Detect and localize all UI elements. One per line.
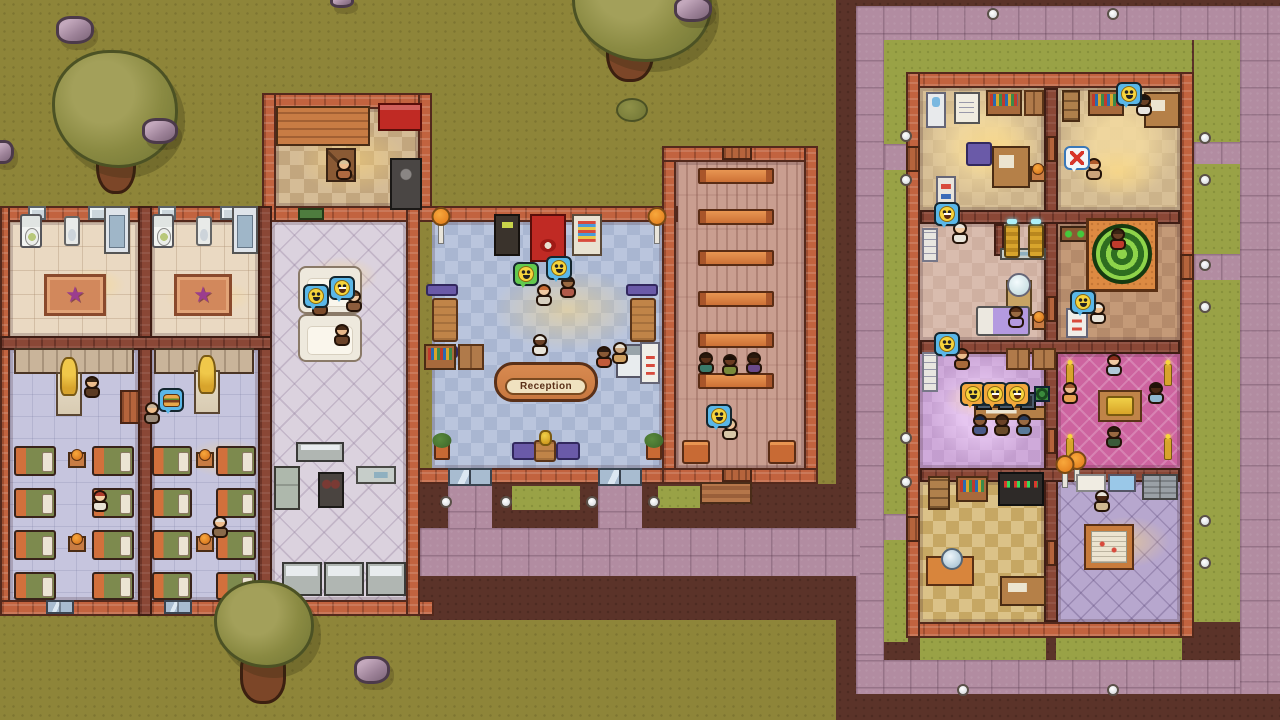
glassdoor[interactable] (598, 468, 642, 486)
cab[interactable] (1006, 348, 1030, 370)
chair-p[interactable] (966, 142, 992, 166)
smiley-face-icon (551, 260, 567, 276)
character[interactable] (612, 342, 628, 364)
cab[interactable] (1032, 348, 1056, 370)
smiley-face-icon (987, 386, 1003, 402)
vend-snack[interactable] (572, 214, 602, 256)
path-light (900, 174, 912, 186)
grass-strip (1194, 280, 1240, 622)
bed[interactable] (92, 446, 134, 476)
shelf-w[interactable] (922, 352, 938, 392)
emote-smile-bubble (513, 262, 539, 286)
smiley-face-icon (711, 408, 727, 424)
sofa[interactable] (298, 314, 362, 362)
counter-disp[interactable] (296, 442, 344, 462)
bookshelf[interactable] (986, 90, 1022, 116)
statue[interactable] (56, 372, 82, 416)
emote-laugh-bubble (329, 276, 355, 300)
walkway-path (884, 144, 908, 170)
rock (56, 16, 94, 44)
grass-strip (658, 486, 700, 508)
sink[interactable] (64, 216, 80, 246)
emote-laugh-bubble (1004, 382, 1030, 406)
stove[interactable] (318, 472, 344, 508)
exterior-wall (1180, 72, 1194, 638)
door[interactable] (1180, 254, 1194, 280)
path-light (1199, 557, 1211, 569)
character-head (1009, 306, 1023, 319)
character[interactable] (596, 346, 612, 368)
character[interactable] (92, 490, 108, 512)
chair-p[interactable] (512, 442, 536, 460)
grass-strip (884, 540, 908, 642)
bed[interactable] (14, 530, 56, 560)
nightstand[interactable] (68, 536, 86, 552)
sink[interactable] (196, 216, 212, 246)
character[interactable] (1148, 382, 1164, 404)
character-head (93, 490, 107, 503)
bed[interactable] (152, 446, 192, 476)
x-icon (1070, 151, 1084, 165)
watercooler[interactable] (926, 92, 946, 128)
walkway-path (420, 528, 860, 576)
smiley-face-icon (939, 336, 955, 352)
lamp[interactable] (1062, 466, 1068, 488)
bench[interactable] (698, 168, 774, 184)
counter-steel[interactable] (356, 466, 396, 484)
path-light (957, 684, 969, 696)
character[interactable] (994, 414, 1010, 436)
emote-smile-bubble (303, 284, 329, 308)
character-head (85, 376, 99, 389)
tesla[interactable] (1004, 224, 1020, 258)
character[interactable] (532, 334, 548, 356)
bed[interactable] (152, 530, 192, 560)
character-head (747, 352, 761, 365)
bookshelf[interactable] (424, 344, 456, 370)
smiley-face-icon (1121, 86, 1137, 102)
smiley-face-icon (1075, 294, 1091, 310)
character[interactable] (1016, 414, 1032, 436)
path-light (586, 496, 598, 508)
character-head (1107, 354, 1121, 367)
door[interactable] (906, 516, 920, 542)
character[interactable] (722, 354, 738, 376)
bed[interactable] (14, 488, 56, 518)
door[interactable] (1046, 428, 1056, 454)
easel[interactable] (954, 92, 980, 124)
character-head (337, 158, 351, 171)
bed[interactable] (14, 446, 56, 476)
smiley-face-icon (1009, 386, 1025, 402)
maptable[interactable] (1084, 524, 1134, 570)
reception-desk[interactable]: Reception (494, 362, 598, 402)
counter-disp[interactable] (324, 562, 364, 596)
toilet[interactable] (20, 214, 42, 248)
grass-strip (512, 486, 580, 510)
game-viewport: Reception (0, 0, 1280, 720)
emote-smile-bubble (934, 332, 960, 356)
poster[interactable] (1034, 386, 1050, 402)
bench[interactable] (698, 209, 774, 225)
path-light (648, 496, 660, 508)
chair-p[interactable] (556, 442, 580, 460)
candle[interactable] (1164, 364, 1172, 386)
rock (354, 656, 390, 684)
emote-smile-bubble (1070, 290, 1096, 314)
character-head (723, 354, 737, 367)
nightstand[interactable] (196, 536, 214, 552)
character[interactable] (1106, 426, 1122, 448)
table[interactable] (630, 298, 656, 342)
grass-strip (908, 40, 1192, 74)
mat[interactable] (174, 274, 232, 316)
character[interactable] (336, 158, 352, 180)
pic-blue[interactable] (1108, 474, 1136, 492)
character-head (213, 516, 227, 529)
path-light (1199, 259, 1211, 271)
walkway-path (856, 660, 1280, 694)
emote-smile-bubble (546, 256, 572, 280)
path-light (900, 432, 912, 444)
character[interactable] (698, 352, 714, 374)
smiley-face-icon (965, 386, 981, 402)
mat[interactable] (44, 274, 106, 316)
path-light (900, 476, 912, 488)
smiley-face-icon (308, 288, 324, 304)
chair-p[interactable] (426, 284, 458, 296)
grass-strip (920, 638, 1046, 660)
exterior-wall (662, 146, 676, 484)
rock (674, 0, 712, 22)
character[interactable] (536, 284, 552, 306)
emote-smile-bubble (1116, 82, 1142, 106)
exterior-wall (262, 93, 276, 222)
path-light (1107, 684, 1119, 696)
walkway-path (856, 6, 1280, 40)
rock (142, 118, 178, 144)
exterior-wall (906, 72, 1194, 88)
character[interactable] (334, 324, 350, 346)
grass-strip (1194, 40, 1240, 142)
door[interactable] (1046, 540, 1056, 566)
character[interactable] (1106, 354, 1122, 376)
path-light (900, 130, 912, 142)
fridge[interactable] (274, 466, 300, 510)
character-head (613, 342, 627, 355)
grass-strip (884, 170, 908, 514)
path-light (440, 496, 452, 508)
table[interactable] (432, 298, 458, 342)
character-head (995, 414, 1009, 427)
character-head (533, 334, 547, 347)
nightstand[interactable] (68, 452, 86, 468)
console[interactable] (998, 472, 1044, 506)
path-light (500, 496, 512, 508)
path-light (1107, 8, 1119, 20)
path-light (1199, 301, 1211, 313)
path-light (1199, 132, 1211, 144)
desk[interactable] (992, 146, 1030, 188)
workbench[interactable] (276, 106, 370, 146)
character-head (1063, 382, 1077, 395)
gold[interactable] (539, 430, 552, 446)
emote-x-bubble (1064, 146, 1090, 170)
smiley-face-icon (939, 206, 955, 222)
bush (616, 98, 648, 122)
filing[interactable] (1062, 90, 1080, 122)
character[interactable] (1062, 382, 1078, 404)
exterior-wall (804, 146, 818, 484)
exterior-wall (0, 206, 10, 616)
burger-icon (163, 394, 180, 407)
filing[interactable] (928, 476, 950, 510)
dirt-ground (420, 576, 860, 620)
bed[interactable] (152, 572, 192, 600)
character-head (1107, 426, 1121, 439)
bed[interactable] (216, 488, 256, 518)
walkway-path (448, 484, 492, 528)
character[interactable] (84, 376, 100, 398)
chest[interactable] (1098, 390, 1142, 422)
cab[interactable] (458, 344, 484, 370)
candle[interactable] (1164, 438, 1172, 460)
exterior-wall (906, 622, 1194, 638)
character-head (335, 324, 349, 337)
door[interactable] (1046, 296, 1056, 322)
machine[interactable] (390, 158, 422, 210)
bed[interactable] (14, 572, 56, 600)
walkway-path (1194, 142, 1240, 164)
panel-w[interactable] (640, 342, 660, 384)
bookshelf[interactable] (956, 476, 988, 502)
lamp[interactable] (654, 218, 660, 244)
shelf-w[interactable] (922, 228, 938, 262)
walkway-path (884, 514, 908, 540)
crystal[interactable] (926, 556, 974, 586)
walkway-path (1240, 6, 1280, 694)
character[interactable] (746, 352, 762, 374)
character-head (699, 352, 713, 365)
floor-hall (676, 162, 804, 468)
smiley-face-icon (334, 280, 350, 296)
door[interactable] (120, 390, 140, 424)
vend-dark[interactable] (494, 214, 520, 256)
door[interactable] (906, 146, 920, 172)
walkway-path (856, 6, 884, 694)
cab[interactable] (1024, 90, 1044, 116)
grass-strip (1056, 638, 1182, 660)
character-head (1095, 490, 1109, 503)
bed[interactable] (92, 572, 134, 600)
character[interactable] (1094, 490, 1110, 512)
smiley-face-icon (518, 266, 534, 282)
desk[interactable] (1000, 576, 1046, 606)
exterior-wall (406, 206, 420, 616)
door[interactable] (722, 146, 752, 160)
lockers[interactable] (1142, 474, 1178, 500)
nightstand[interactable] (1032, 314, 1046, 330)
bench[interactable] (698, 250, 774, 266)
toilet[interactable] (152, 214, 174, 248)
interior-wall (258, 206, 272, 616)
bench[interactable] (698, 291, 774, 307)
door[interactable] (1046, 136, 1056, 162)
walkway-path (598, 484, 642, 528)
character-head (1149, 382, 1163, 395)
bed[interactable] (152, 488, 192, 518)
vend-red[interactable] (530, 214, 566, 262)
character[interactable] (1110, 228, 1126, 250)
emote-smile-bubble (706, 404, 732, 428)
tesla[interactable] (1028, 224, 1044, 258)
plant[interactable] (434, 440, 450, 460)
bench[interactable] (698, 332, 774, 348)
character-head (1017, 414, 1031, 427)
shower[interactable] (104, 206, 130, 254)
bench-wood[interactable] (700, 482, 752, 504)
counter-disp[interactable] (366, 562, 406, 596)
character[interactable] (972, 414, 988, 436)
character[interactable] (212, 516, 228, 538)
reception-sign: Reception (505, 378, 587, 395)
stool[interactable] (682, 440, 710, 464)
emote-laugh-bubble (934, 202, 960, 226)
path-light (987, 8, 999, 20)
character-head (597, 346, 611, 359)
character-head (973, 414, 987, 427)
door-green[interactable] (298, 208, 324, 220)
door[interactable] (722, 468, 752, 482)
shower[interactable] (232, 206, 258, 254)
emote-burger-bubble (158, 388, 184, 412)
statue[interactable] (194, 370, 220, 414)
path-light (1199, 174, 1211, 186)
nightstand[interactable] (1030, 166, 1046, 182)
plant[interactable] (646, 440, 662, 460)
nightstand[interactable] (196, 452, 214, 468)
grass-strip (884, 40, 908, 144)
character[interactable] (1008, 306, 1024, 328)
lamp[interactable] (438, 218, 444, 244)
character-head (145, 402, 159, 415)
bed[interactable] (216, 446, 256, 476)
chair-p[interactable] (626, 284, 658, 296)
stool[interactable] (768, 440, 796, 464)
character-head (537, 284, 551, 297)
path-light (1199, 515, 1211, 527)
bed[interactable] (92, 530, 134, 560)
glassdoor[interactable] (448, 468, 492, 486)
glassdoor[interactable] (46, 600, 74, 614)
toolcab[interactable] (378, 103, 422, 131)
glassdoor[interactable] (164, 600, 192, 614)
character-head (1111, 228, 1125, 241)
